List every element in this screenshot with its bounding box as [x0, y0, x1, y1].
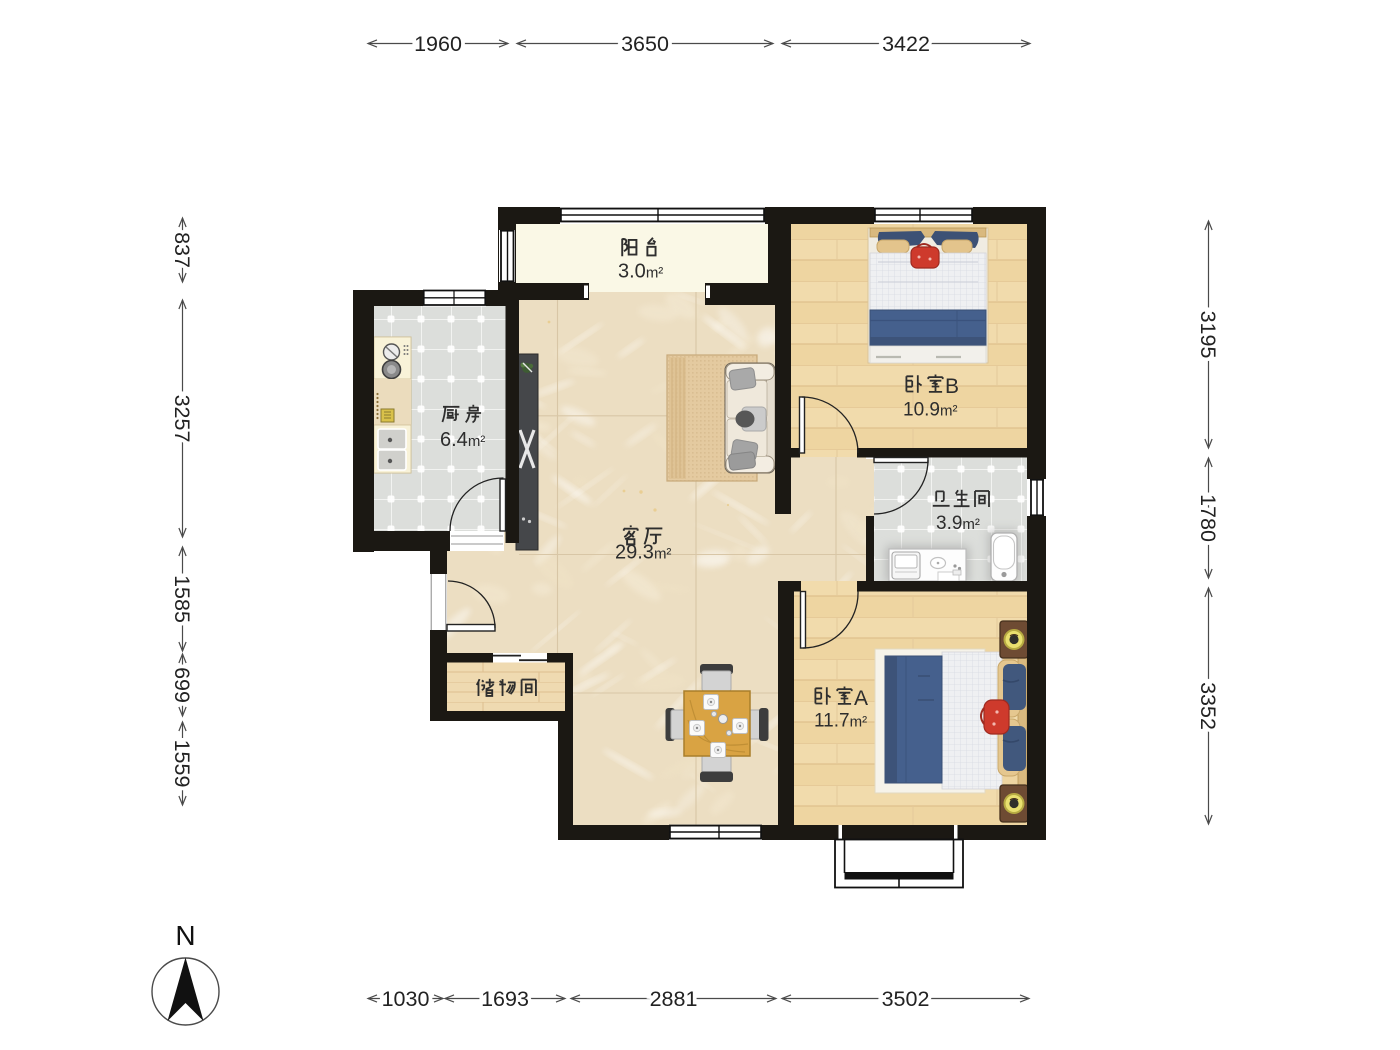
svg-text:2881: 2881	[650, 987, 698, 1011]
svg-text:837: 837	[170, 232, 194, 268]
svg-text:1960: 1960	[414, 32, 462, 56]
svg-text:11.7m²: 11.7m²	[814, 711, 867, 732]
svg-text:B: B	[945, 375, 959, 398]
svg-text:1559: 1559	[170, 740, 194, 788]
svg-text:1780: 1780	[1196, 494, 1220, 542]
svg-text:1030: 1030	[382, 987, 430, 1011]
svg-text:1585: 1585	[170, 575, 194, 623]
svg-text:699: 699	[170, 667, 194, 703]
svg-text:1693: 1693	[481, 987, 529, 1011]
svg-text:3422: 3422	[882, 32, 930, 56]
svg-text:N: N	[175, 920, 195, 951]
svg-text:10.9m²: 10.9m²	[903, 400, 957, 421]
svg-text:3195: 3195	[1196, 311, 1220, 359]
svg-text:3257: 3257	[170, 395, 194, 443]
svg-text:A: A	[854, 687, 868, 710]
svg-text:6.4m²: 6.4m²	[440, 429, 485, 451]
svg-text:3650: 3650	[621, 32, 669, 56]
svg-text:29.3m²: 29.3m²	[615, 542, 671, 564]
svg-text:3502: 3502	[882, 987, 930, 1011]
svg-text:3.9m²: 3.9m²	[936, 513, 980, 534]
svg-text:3352: 3352	[1196, 682, 1220, 730]
svg-text:3.0m²: 3.0m²	[618, 261, 663, 283]
